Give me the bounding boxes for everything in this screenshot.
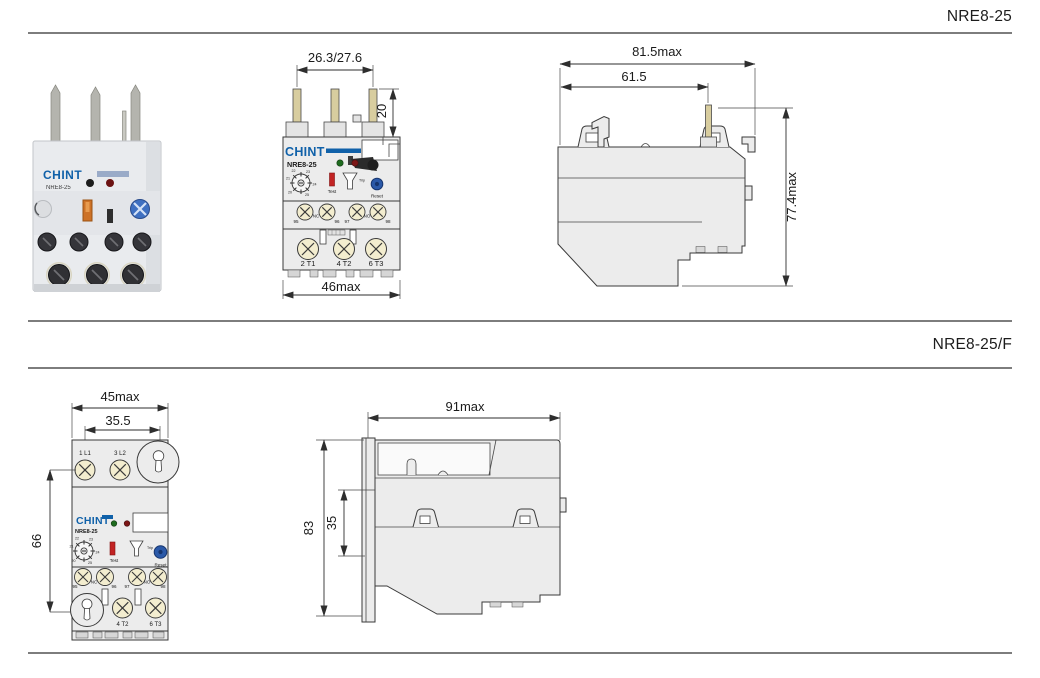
top-recess [378, 443, 490, 475]
dim-width: 46max [283, 279, 400, 299]
photo-model-label: NRE8-25 [46, 185, 71, 191]
section-title-nre8-25: NRE8-25 [28, 8, 1012, 26]
dim-depth: 61.5 [561, 69, 708, 103]
recess-hook [407, 459, 416, 475]
photo-logo-tagline [97, 171, 129, 177]
svg-text:21: 21 [286, 177, 290, 181]
dim-label-rail: 35 [324, 516, 339, 530]
svg-text:95: 95 [293, 219, 299, 224]
reset-button-icon [371, 178, 383, 190]
svg-text:98: 98 [160, 584, 166, 589]
model-label: NRE8-25 [287, 160, 317, 169]
photo-pins [51, 85, 140, 143]
dim-label-width: 91max [445, 399, 485, 414]
svg-text:4 T2: 4 T2 [337, 259, 352, 268]
dim-label-width: 45max [100, 389, 140, 404]
brand-logo: CHINT [285, 145, 325, 159]
dim-label-height: 83 [301, 521, 316, 535]
svg-text:NC: NC [91, 580, 98, 585]
current-dial-icon [73, 540, 95, 562]
svg-text:1 L1: 1 L1 [79, 451, 91, 457]
label-window [133, 513, 168, 532]
side-view-drawing-nre8-25f: 91max 83 35 [300, 390, 600, 650]
svg-text:24: 24 [96, 551, 100, 555]
svg-text:20: 20 [72, 559, 76, 563]
dim-label-depth: 61.5 [621, 69, 646, 84]
dim-label-pin-span: 26.3/27.6 [308, 50, 362, 65]
photo-bottom-strip [34, 284, 160, 292]
flange [362, 438, 375, 622]
svg-text:6 T3: 6 T3 [150, 622, 163, 628]
svg-text:20: 20 [288, 191, 292, 195]
svg-text:6 T3: 6 T3 [369, 259, 384, 268]
red-indicator [352, 160, 358, 166]
bottom-feet [288, 270, 393, 277]
svg-text:23: 23 [306, 170, 310, 174]
trip-label: Trip [147, 546, 153, 550]
dim-label-pin-height: 20 [374, 104, 389, 118]
dim-label-depth-max: 81.5max [632, 44, 682, 59]
section-title-nre8-25f: NRE8-25/F [28, 336, 1012, 354]
side-view-drawing-nre8-25: 81.5max 61.5 77.4max [530, 40, 810, 310]
horizontal-rule-3 [28, 367, 1012, 369]
svg-text:23: 23 [89, 538, 93, 542]
photo-main-screws [47, 263, 146, 288]
test-label: Test [328, 189, 337, 194]
svg-text:3 L2: 3 L2 [114, 451, 126, 457]
reset-button-icon [154, 546, 167, 559]
datasheet-page: { "page": {"background": "#ffffff", "rul… [0, 0, 1040, 678]
svg-text:98: 98 [385, 219, 391, 224]
brand-bar [326, 149, 361, 154]
svg-text:96: 96 [111, 584, 117, 589]
bottom-feet [490, 602, 523, 607]
svg-text:25: 25 [88, 561, 92, 565]
front-view-drawing-nre8-25f: 45max 35.5 1 L1 3 L2 CHINT NRE8-25 20 21… [30, 385, 215, 660]
top-bump [641, 144, 650, 148]
model-label: NRE8-25 [75, 529, 98, 535]
svg-text:97: 97 [124, 584, 130, 589]
svg-text:NC: NC [313, 214, 320, 219]
current-dial-icon [290, 172, 312, 194]
svg-text:4 T2: 4 T2 [117, 622, 130, 628]
photo-indicator-red [106, 179, 114, 187]
rear-tab [560, 498, 566, 512]
svg-text:2 T1: 2 T1 [301, 259, 316, 268]
label-window [362, 140, 398, 160]
brand-bar [102, 515, 113, 519]
dim-label-height: 77.4max [784, 172, 799, 222]
dim-width: 91max [368, 399, 560, 440]
dim-height: 66 [29, 470, 76, 612]
horizontal-rule-2 [28, 320, 1012, 322]
green-indicator [337, 160, 343, 166]
photo-indicator-dark [86, 179, 94, 187]
photo-test-slider-icon [83, 200, 92, 221]
photo-trip-flag-icon [107, 209, 113, 223]
photo-dial-icon [35, 201, 52, 218]
trip-label: Trip [359, 179, 365, 183]
svg-text:22: 22 [75, 537, 79, 541]
svg-text:97: 97 [344, 219, 350, 224]
photo-reset-screw-icon [131, 200, 150, 219]
svg-text:95: 95 [72, 584, 78, 589]
reset-label: Reset [371, 194, 384, 199]
dim-label-height: 66 [29, 534, 44, 548]
horizontal-rule-1 [28, 32, 1012, 34]
test-label: Test [110, 558, 119, 563]
red-indicator [124, 521, 130, 527]
product-photo: CHINT NRE8-25 [33, 85, 163, 297]
main-terminal-labels: 2 T1 4 T2 6 T3 [301, 259, 384, 268]
test-slider-icon [110, 542, 115, 555]
dim-label-span: 35.5 [105, 413, 130, 428]
dim-label-width: 46max [321, 279, 361, 294]
svg-text:NO: NO [144, 580, 151, 585]
front-view-drawing-nre8-25: 26.3/27.6 20 CHINT NRE8-25 20 21 22 23 2… [265, 45, 410, 310]
dim-pin-span: 26.3/27.6 [297, 50, 373, 87]
main-screw-terminals [298, 239, 387, 260]
rear-latch [742, 137, 755, 152]
svg-text:NO: NO [364, 214, 371, 219]
svg-text:21: 21 [70, 545, 74, 549]
green-indicator [111, 521, 117, 527]
test-slider-icon [330, 173, 335, 186]
photo-brand-logo: CHINT [43, 168, 82, 182]
connection-pins [286, 89, 384, 137]
svg-text:96: 96 [334, 219, 340, 224]
svg-text:25: 25 [305, 193, 309, 197]
svg-text:22: 22 [292, 169, 296, 173]
side-body-outline [558, 147, 745, 286]
rear-tab [745, 186, 752, 200]
svg-text:24: 24 [313, 183, 317, 187]
